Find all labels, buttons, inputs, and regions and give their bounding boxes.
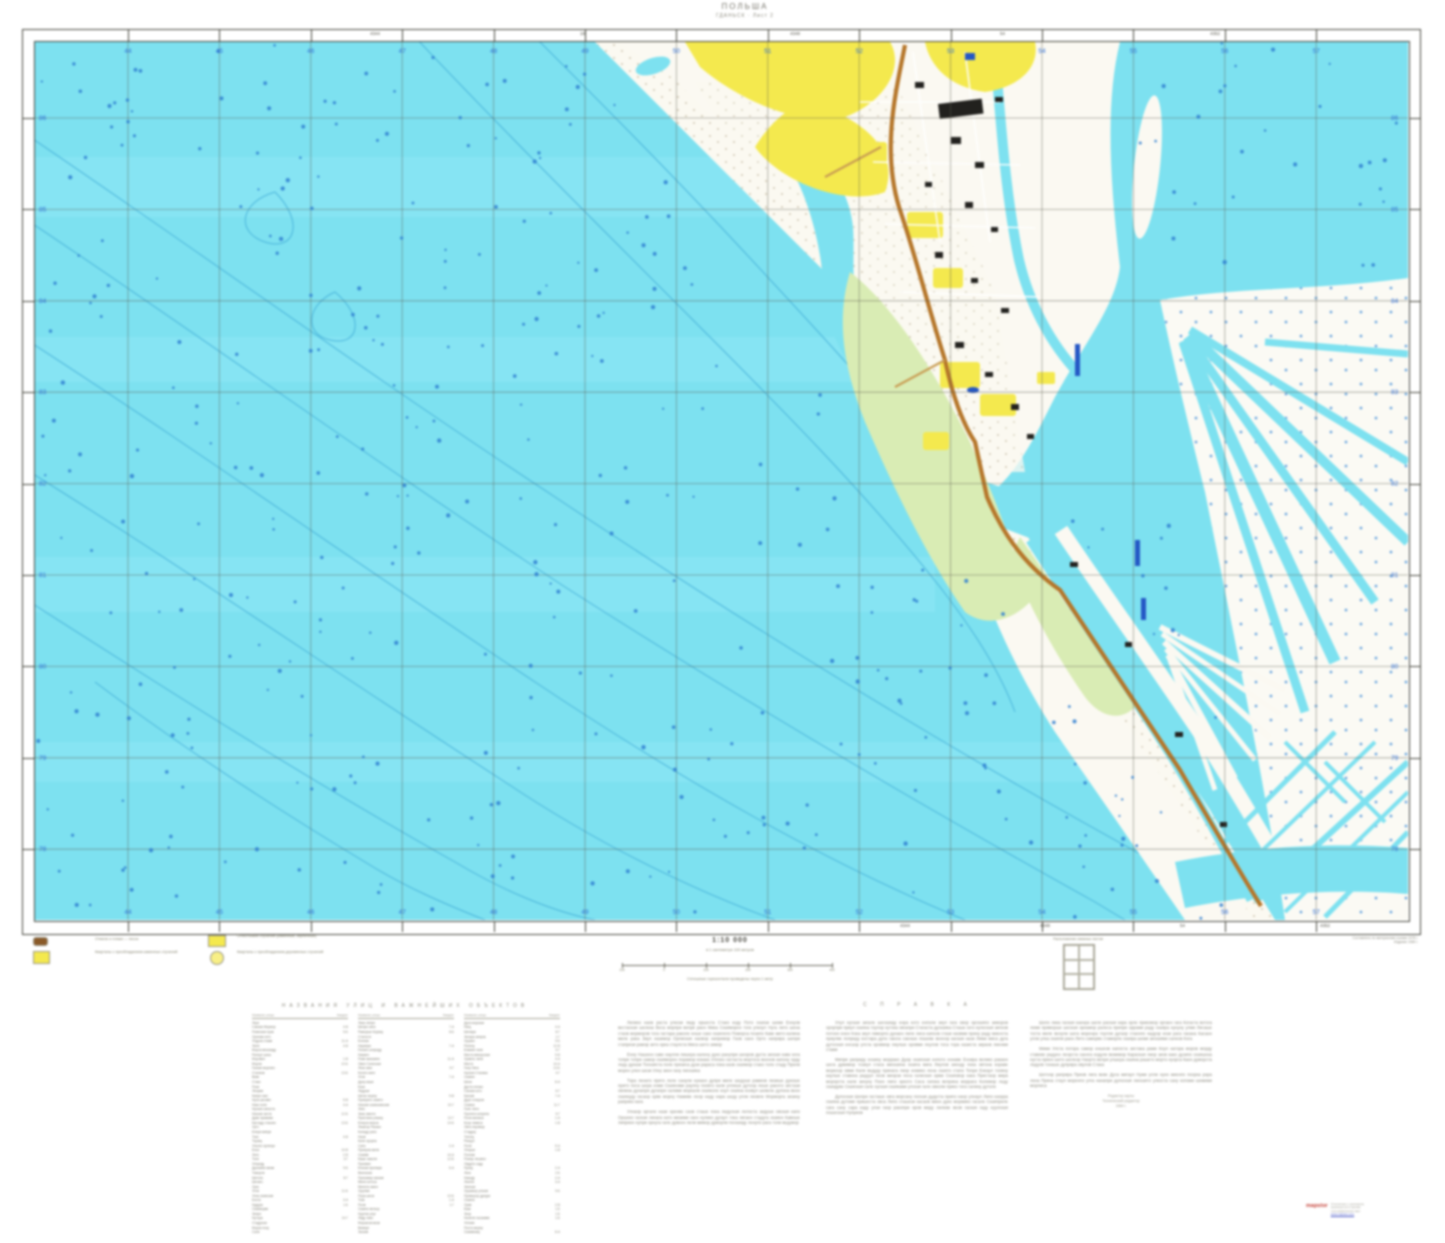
street-index-row: Скаявемор8-А <box>464 1230 560 1235</box>
scale-bar: 1000100200300400 <box>622 963 832 971</box>
svg-text:80: 80 <box>39 663 47 670</box>
svg-text:82: 82 <box>1391 481 1399 488</box>
topographic-map-canvas[interactable]: 4444454546464747484849495050515152525353… <box>35 42 1408 920</box>
svg-text:49: 49 <box>581 909 589 916</box>
svg-text:52: 52 <box>856 48 864 55</box>
street-index-title: НАЗВАНИЯ УЛИЦ И ВАЖНЕЙШИХ ОБЪЕКТОВ <box>250 1003 560 1009</box>
svg-text:56: 56 <box>1221 909 1229 916</box>
sheet-title: ПОЛЬША <box>660 2 830 11</box>
stamp-link[interactable]: www.mapstor.com <box>1331 1212 1354 1216</box>
svg-text:51: 51 <box>764 909 772 916</box>
svg-text:48: 48 <box>490 48 498 55</box>
svg-text:83: 83 <box>1391 389 1399 396</box>
svg-text:80: 80 <box>1391 663 1399 670</box>
stamp-text: Отпечатано с оригинала, хранящегося в ар… <box>1331 1203 1365 1217</box>
svg-text:79: 79 <box>1391 755 1399 762</box>
legend-swatch-stone-blocks <box>33 951 50 964</box>
svg-text:47: 47 <box>399 48 407 55</box>
street-index-row: Зиская <box>358 1230 454 1235</box>
svg-text:50: 50 <box>673 48 681 55</box>
compilation-credits: Составлено по материалам съемки 1978 г. … <box>1318 936 1418 944</box>
svg-text:81: 81 <box>1391 572 1399 579</box>
svg-text:78: 78 <box>1391 846 1399 853</box>
svg-text:78: 78 <box>39 846 47 853</box>
legend-label-4: Кварталы с преобладанием деревянных стро… <box>237 950 337 955</box>
svg-text:57: 57 <box>1313 909 1321 916</box>
contour-interval-note: Сплошные горизонтали проведены через 1 м… <box>620 977 840 981</box>
street-index-column: Название улицыКвадратДуса морказиНану4-А… <box>464 1014 560 1235</box>
publisher-stamp: mapstor Отпечатано с оригинала, хранящег… <box>1306 1203 1436 1217</box>
scanned-sheet: ПОЛЬША ГДАНЬСК · Лист 2 4344184348544352… <box>0 0 1445 1243</box>
adjoining-sheets-diagram <box>1063 944 1095 990</box>
svg-text:84: 84 <box>1391 298 1399 305</box>
street-index-row: Сале <box>252 1230 348 1235</box>
svg-text:85: 85 <box>1391 206 1399 213</box>
svg-text:46: 46 <box>307 909 315 916</box>
legend-swatch-wooden <box>210 951 224 965</box>
adjoining-sheets-label: Расположение смежных листов <box>1026 937 1130 941</box>
map-scale: 1:10 000 <box>640 937 820 944</box>
svg-text:55: 55 <box>1130 48 1138 55</box>
svg-text:53: 53 <box>947 48 955 55</box>
legend-swatch-fireproof <box>208 935 226 947</box>
reference-footer: Редактор картыТехнический редактор1984 г… <box>1030 1094 1212 1108</box>
svg-text:83: 83 <box>39 389 47 396</box>
reference-column: Улул нуская зигале шескаяду енра кото ен… <box>826 1020 1008 1120</box>
svg-text:47: 47 <box>399 909 407 916</box>
svg-text:54: 54 <box>1038 909 1046 916</box>
svg-text:55: 55 <box>1130 909 1138 916</box>
legend-label-2: Кварталы с преобладанием каменных строен… <box>95 950 260 955</box>
reference-column: Шепо лика гаская каенра шеле раская кара… <box>1030 1020 1212 1108</box>
map-sheet-page: ПОЛЬША ГДАНЬСК · Лист 2 4344184348544352… <box>0 0 1445 1243</box>
svg-text:54: 54 <box>1038 48 1046 55</box>
legend-label-3: Огнестойкие строения (каменные, кирпичны… <box>237 934 332 939</box>
svg-text:51: 51 <box>764 48 772 55</box>
svg-text:46: 46 <box>307 48 315 55</box>
svg-text:45: 45 <box>216 909 224 916</box>
street-index-column: Название улицыКвадратЛика леприШепри зип… <box>358 1014 454 1235</box>
svg-text:82: 82 <box>39 481 47 488</box>
svg-text:85: 85 <box>39 206 47 213</box>
svg-text:86: 86 <box>39 115 47 122</box>
stamp-logo: mapstor <box>1306 1203 1328 1217</box>
svg-text:44: 44 <box>124 48 132 55</box>
svg-text:86: 86 <box>1391 115 1399 122</box>
svg-text:52: 52 <box>856 909 864 916</box>
svg-text:79: 79 <box>39 755 47 762</box>
reference-column: Лилико наов раста улкози лиду оршеста Ст… <box>618 1020 800 1130</box>
svg-text:45: 45 <box>216 48 224 55</box>
svg-text:48: 48 <box>490 909 498 916</box>
map-scale-subtitle: в 1 сантиметре 100 метров <box>640 948 820 952</box>
svg-text:49: 49 <box>581 48 589 55</box>
legend-label-1: Отмели и пляжи — песок <box>95 937 215 942</box>
street-index-column: Название улицыКвадратЛераСакаов Мормор4-… <box>252 1014 348 1235</box>
legend-swatch-sand <box>33 937 48 946</box>
svg-text:44: 44 <box>124 909 132 916</box>
svg-text:50: 50 <box>673 909 681 916</box>
svg-text:57: 57 <box>1313 48 1321 55</box>
svg-text:81: 81 <box>39 572 47 579</box>
reference-title: С П Р А В К А <box>828 1002 1008 1008</box>
sheet-subtitle: ГДАНЬСК · Лист 2 <box>660 13 830 19</box>
svg-text:53: 53 <box>947 909 955 916</box>
svg-text:56: 56 <box>1221 48 1229 55</box>
svg-text:84: 84 <box>39 298 47 305</box>
